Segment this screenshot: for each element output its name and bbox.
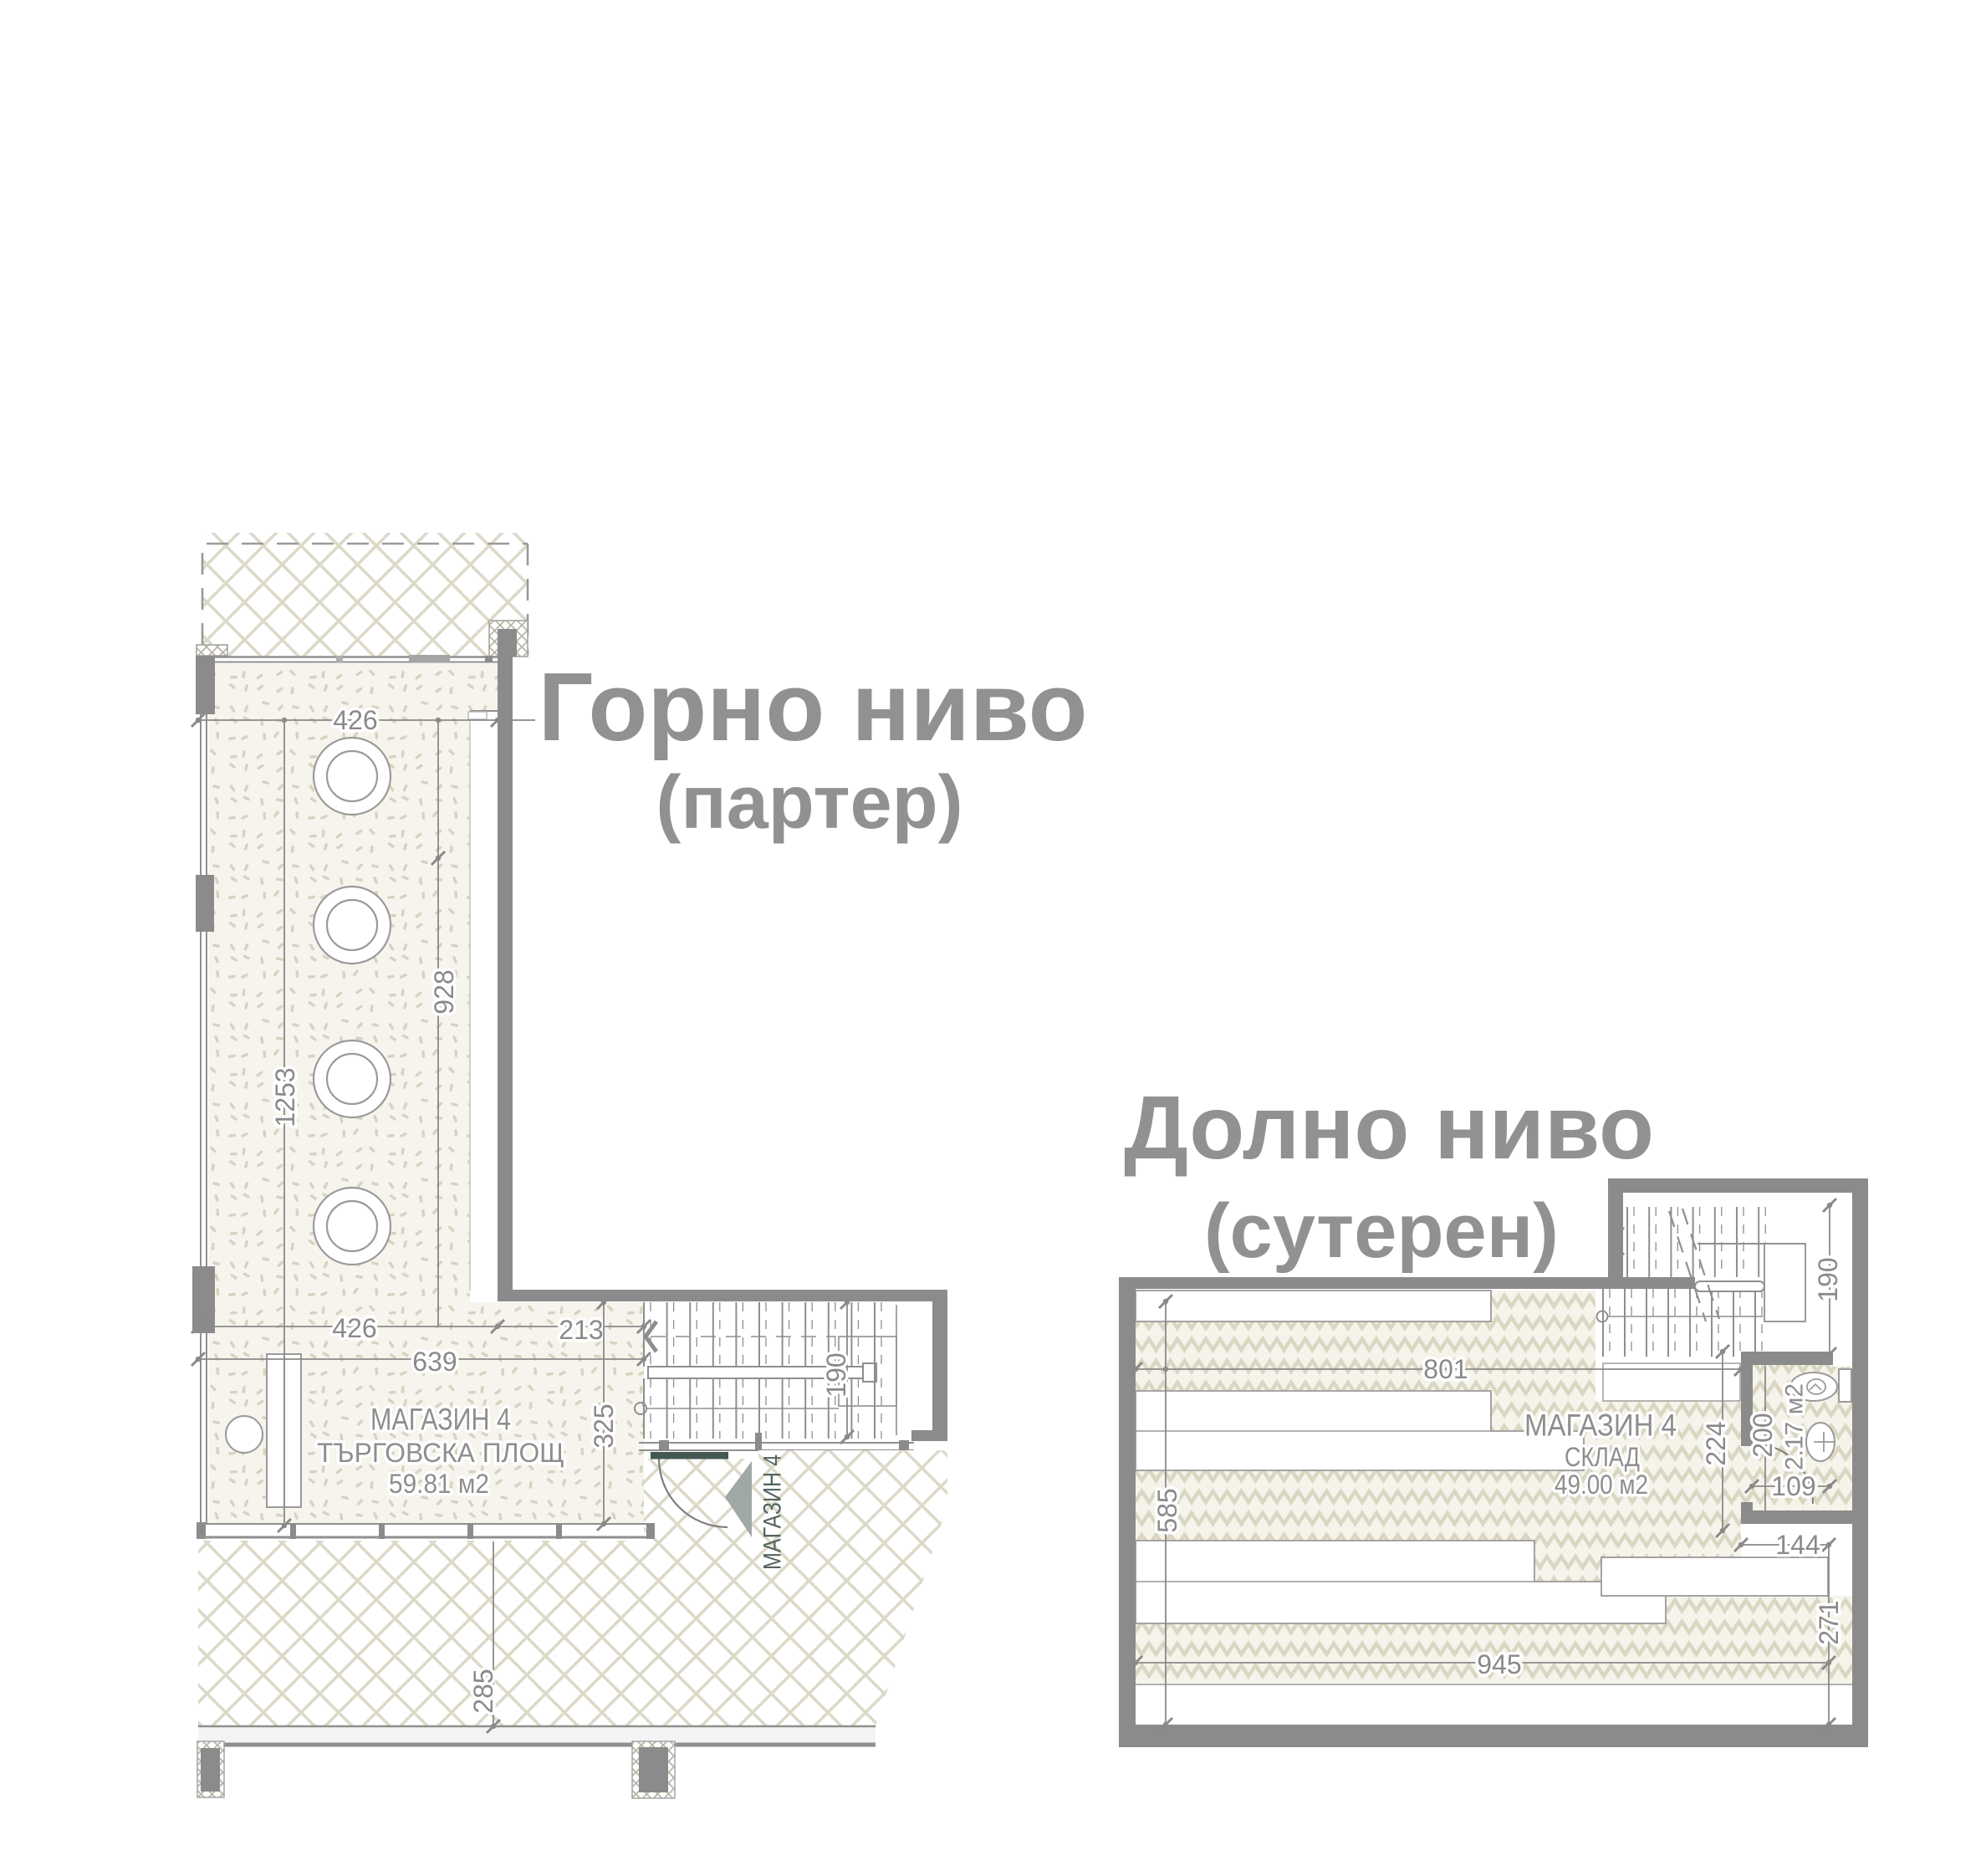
svg-text:213: 213 xyxy=(559,1315,603,1345)
svg-text:ТЪРГОВСКА ПЛОЩ: ТЪРГОВСКА ПЛОЩ xyxy=(317,1438,564,1468)
svg-text:285: 285 xyxy=(468,1669,498,1713)
svg-text:(сутерен): (сутерен) xyxy=(1204,1188,1559,1274)
svg-text:144: 144 xyxy=(1775,1530,1820,1560)
svg-text:801: 801 xyxy=(1423,1354,1468,1384)
svg-text:325: 325 xyxy=(589,1403,619,1448)
svg-text:190: 190 xyxy=(821,1352,851,1397)
svg-text:200: 200 xyxy=(1748,1413,1778,1457)
svg-text:585: 585 xyxy=(1152,1488,1182,1532)
svg-text:59.81 м2: 59.81 м2 xyxy=(389,1469,489,1499)
svg-text:49.00 м2: 49.00 м2 xyxy=(1555,1470,1648,1500)
svg-text:2.17 м2: 2.17 м2 xyxy=(1781,1383,1809,1470)
svg-text:109: 109 xyxy=(1771,1471,1815,1501)
svg-text:СКЛАД: СКЛАД xyxy=(1565,1442,1640,1472)
svg-text:Горно ниво: Горно ниво xyxy=(539,652,1088,761)
svg-text:1253: 1253 xyxy=(270,1067,300,1127)
svg-text:426: 426 xyxy=(332,1313,376,1343)
svg-text:224: 224 xyxy=(1701,1421,1731,1465)
svg-text:МАГАЗИН 4: МАГАЗИН 4 xyxy=(759,1454,787,1570)
svg-text:271: 271 xyxy=(1814,1600,1844,1644)
svg-text:(партер): (партер) xyxy=(656,761,962,845)
svg-text:426: 426 xyxy=(333,705,377,735)
svg-text:Долно ниво: Долно ниво xyxy=(1124,1076,1654,1178)
svg-text:639: 639 xyxy=(412,1347,457,1377)
svg-text:945: 945 xyxy=(1477,1649,1521,1679)
svg-text:МАГАЗИН 4: МАГАЗИН 4 xyxy=(1524,1408,1677,1443)
svg-text:928: 928 xyxy=(429,969,459,1014)
svg-text:190: 190 xyxy=(1813,1257,1843,1301)
svg-text:МАГАЗИН 4: МАГАЗИН 4 xyxy=(370,1403,511,1437)
